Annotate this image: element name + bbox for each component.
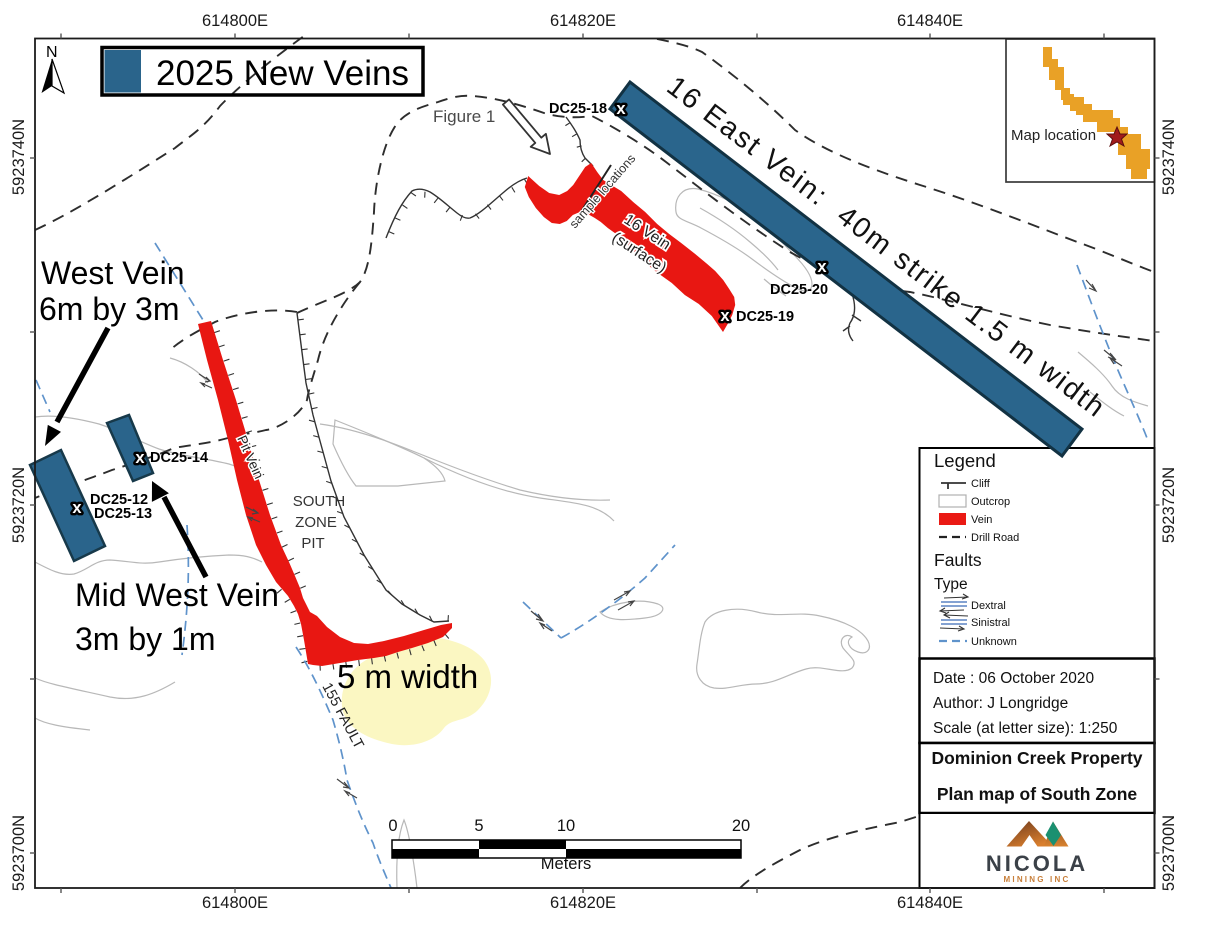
svg-text:614840E: 614840E <box>897 12 963 30</box>
svg-text:Faults: Faults <box>934 550 982 570</box>
svg-text:0: 0 <box>388 817 397 835</box>
svg-text:5923700N: 5923700N <box>10 815 28 891</box>
svg-text:x: x <box>616 100 626 118</box>
svg-text:5923720N: 5923720N <box>1160 467 1178 543</box>
svg-text:Dominion Creek Property: Dominion Creek Property <box>931 748 1142 768</box>
svg-text:DC25-19: DC25-19 <box>736 309 794 325</box>
svg-text:Dextral: Dextral <box>971 600 1006 612</box>
svg-text:614800E: 614800E <box>202 12 268 30</box>
svg-text:Author: J Longridge: Author: J Longridge <box>933 695 1068 712</box>
svg-text:10: 10 <box>557 817 575 835</box>
svg-text:MINING INC: MINING INC <box>1004 875 1071 884</box>
svg-text:Cliff: Cliff <box>971 478 991 490</box>
svg-text:614820E: 614820E <box>550 894 616 912</box>
svg-text:2025 New Veins: 2025 New Veins <box>156 54 409 93</box>
svg-text:Sinistral: Sinistral <box>971 617 1010 629</box>
svg-text:SOUTH: SOUTH <box>293 493 346 510</box>
svg-text:DC25-18: DC25-18 <box>549 101 607 117</box>
svg-text:Plan map of South Zone: Plan map of South Zone <box>937 784 1138 804</box>
svg-text:614800E: 614800E <box>202 894 268 912</box>
svg-text:3m by 1m: 3m by 1m <box>75 621 215 657</box>
svg-text:x: x <box>817 258 827 276</box>
svg-text:Legend: Legend <box>934 450 996 471</box>
svg-text:6m by 3m: 6m by 3m <box>39 291 179 327</box>
svg-text:Vein: Vein <box>971 514 992 526</box>
svg-text:614840E: 614840E <box>897 894 963 912</box>
svg-text:ZONE: ZONE <box>295 514 337 531</box>
svg-text:Figure 1: Figure 1 <box>433 107 495 126</box>
svg-text:DC25-13: DC25-13 <box>94 506 152 522</box>
svg-text:Scale (at letter size): 1:250: Scale (at letter size): 1:250 <box>933 720 1118 737</box>
svg-text:5: 5 <box>474 817 483 835</box>
svg-text:x: x <box>72 499 82 517</box>
svg-text:x: x <box>135 449 145 467</box>
svg-text:Drill Road: Drill Road <box>971 532 1019 544</box>
svg-text:DC25-14: DC25-14 <box>150 450 208 466</box>
svg-text:Unknown: Unknown <box>971 636 1017 648</box>
svg-text:Mid West Vein: Mid West Vein <box>75 577 279 613</box>
svg-text:5923740N: 5923740N <box>1160 119 1178 195</box>
svg-text:N: N <box>46 44 58 61</box>
svg-text:5 m width: 5 m width <box>337 658 478 695</box>
svg-text:x: x <box>720 307 730 325</box>
svg-text:Type: Type <box>934 576 968 593</box>
svg-text:5923740N: 5923740N <box>10 119 28 195</box>
svg-text:20: 20 <box>732 817 750 835</box>
svg-text:NICOLA: NICOLA <box>986 851 1088 876</box>
svg-text:Outcrop: Outcrop <box>971 496 1010 508</box>
svg-text:PIT: PIT <box>301 535 324 552</box>
svg-text:5923720N: 5923720N <box>10 467 28 543</box>
svg-text:Date : 06 October 2020: Date : 06 October 2020 <box>933 670 1095 687</box>
svg-text:West Vein: West Vein <box>41 255 184 291</box>
svg-text:Map location: Map location <box>1011 127 1096 144</box>
svg-text:DC25-20: DC25-20 <box>770 282 828 298</box>
svg-text:5923700N: 5923700N <box>1160 815 1178 891</box>
svg-text:614820E: 614820E <box>550 12 616 30</box>
svg-text:Meters: Meters <box>541 855 591 873</box>
